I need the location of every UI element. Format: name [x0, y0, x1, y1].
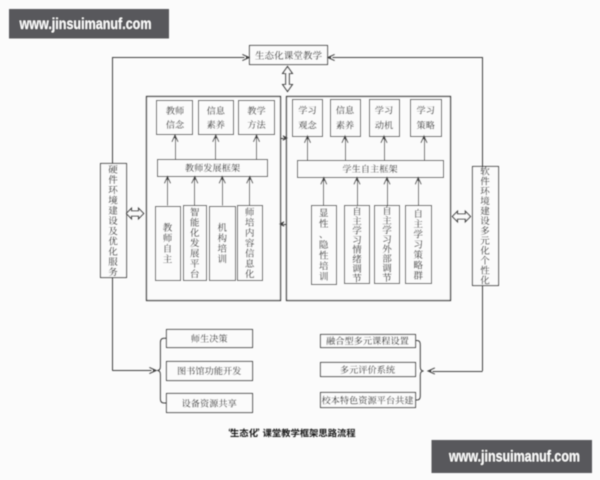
svg-text:www.jinsuimanuf.com: www.jinsuimanuf.com — [448, 449, 580, 466]
svg-text:www.jinsuimanuf.com: www.jinsuimanuf.com — [19, 16, 152, 33]
